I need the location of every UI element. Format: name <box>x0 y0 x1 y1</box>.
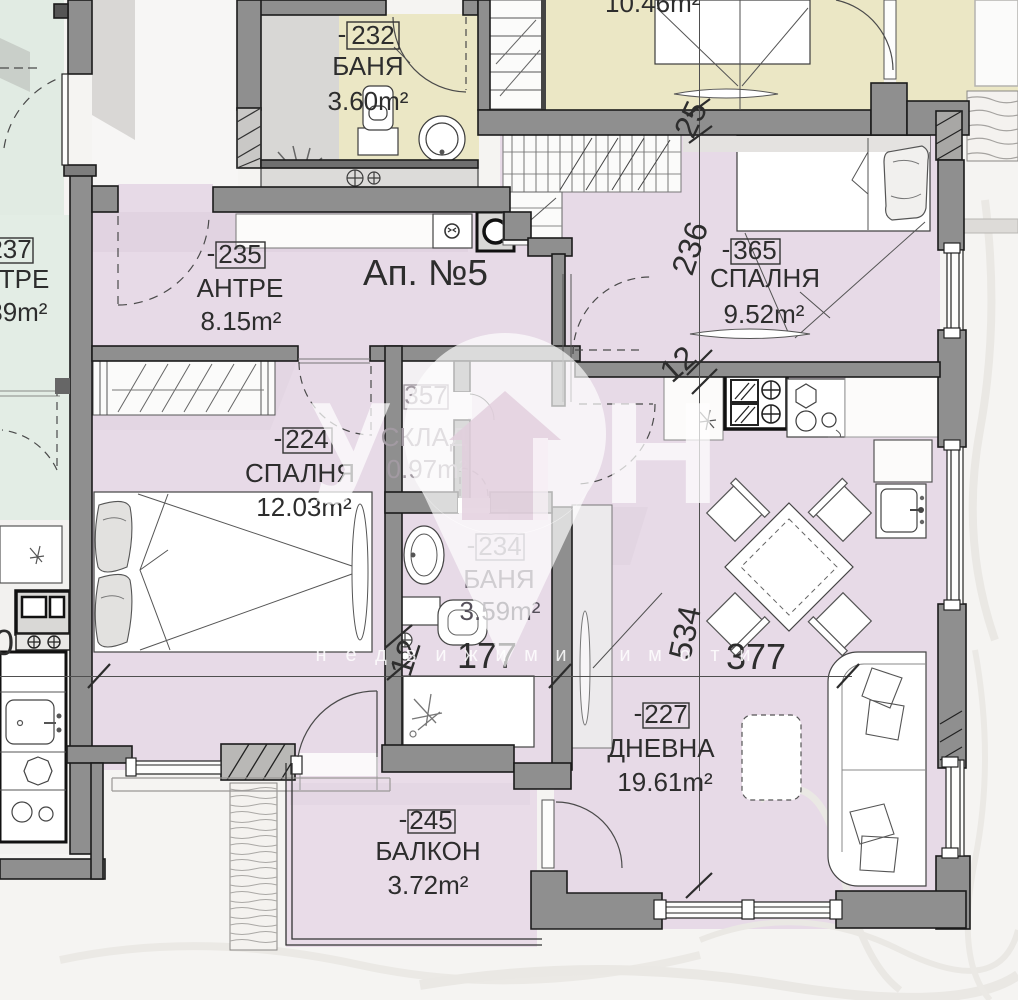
svg-text:о: о <box>679 644 690 666</box>
svg-text:3.72m²: 3.72m² <box>388 870 469 900</box>
svg-text:3.60m²: 3.60m² <box>328 86 409 116</box>
svg-text:н: н <box>315 644 326 666</box>
svg-text:-: - <box>399 804 408 834</box>
svg-text:10.46m²: 10.46m² <box>605 0 701 18</box>
svg-text:-: - <box>207 238 216 268</box>
svg-text:237: 237 <box>0 234 32 264</box>
svg-text:БАЛКОН: БАЛКОН <box>375 836 480 866</box>
svg-text:227: 227 <box>644 699 687 729</box>
svg-text:Н: Н <box>601 372 721 534</box>
svg-text:235: 235 <box>218 239 261 269</box>
svg-text:и: и <box>435 644 446 666</box>
svg-text:СПАЛНЯ: СПАЛНЯ <box>710 263 820 293</box>
svg-text:-: - <box>274 423 283 453</box>
svg-text:19.61m²: 19.61m² <box>617 767 713 797</box>
svg-text:и: и <box>739 644 750 666</box>
svg-text:245: 245 <box>409 805 452 835</box>
svg-text:-: - <box>634 698 643 728</box>
svg-text:АНТРЕ: АНТРЕ <box>197 273 284 303</box>
svg-text:м: м <box>524 644 538 666</box>
svg-text:е: е <box>345 644 356 666</box>
svg-text:232: 232 <box>351 20 394 50</box>
svg-text:т: т <box>710 644 719 666</box>
svg-text:м: м <box>648 644 662 666</box>
svg-text:У: У <box>311 372 391 534</box>
svg-text:АНТРЕ: АНТРЕ <box>0 264 49 294</box>
svg-text:377: 377 <box>726 636 786 677</box>
svg-text:0: 0 <box>0 622 14 663</box>
svg-text:ж: ж <box>464 644 478 666</box>
svg-text:-: - <box>338 19 347 49</box>
svg-text:БАНЯ: БАНЯ <box>332 51 403 81</box>
svg-text:8.39m²: 8.39m² <box>0 297 48 327</box>
svg-text:9.52m²: 9.52m² <box>724 299 805 329</box>
svg-text:Ап. №5: Ап. №5 <box>363 252 488 293</box>
svg-text:и: и <box>555 644 566 666</box>
svg-text:365: 365 <box>733 235 776 265</box>
svg-text:-: - <box>722 234 731 264</box>
svg-text:и: и <box>495 644 506 666</box>
svg-text:ДНЕВНА: ДНЕВНА <box>607 733 715 763</box>
svg-text:8.15m²: 8.15m² <box>201 306 282 336</box>
svg-text:д: д <box>375 644 387 666</box>
svg-text:и: и <box>619 644 630 666</box>
svg-text:в: в <box>406 644 417 666</box>
